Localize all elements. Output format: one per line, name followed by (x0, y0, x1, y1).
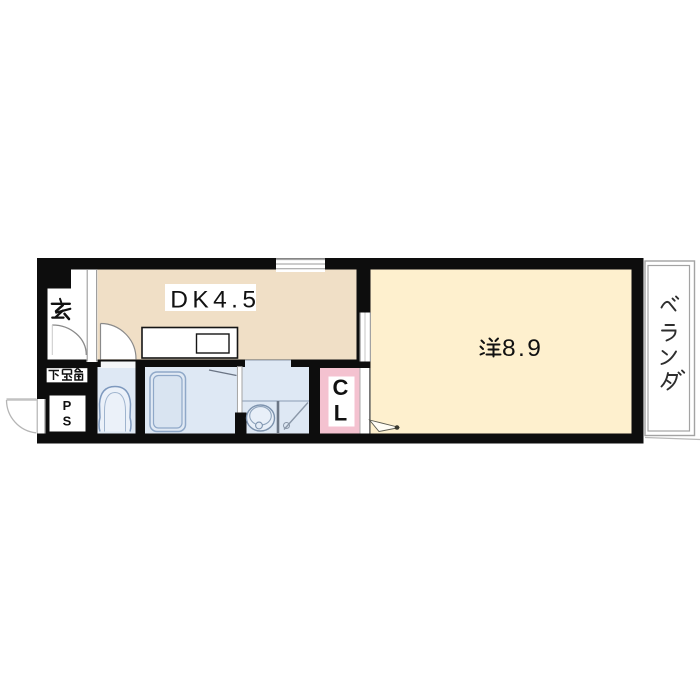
svg-text:P: P (63, 398, 72, 413)
svg-text:S: S (63, 414, 72, 429)
svg-text:8.9: 8.9 (502, 335, 543, 362)
svg-text:DK4.5: DK4.5 (170, 287, 260, 314)
svg-text:C: C (333, 375, 349, 400)
svg-text:L: L (334, 401, 347, 426)
